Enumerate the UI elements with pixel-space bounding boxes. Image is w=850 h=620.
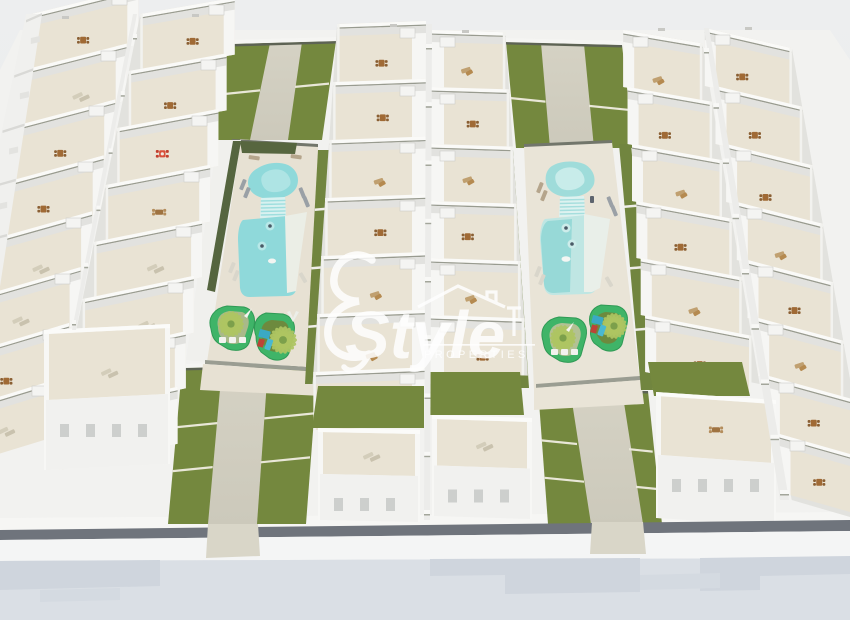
svg-text:PROPERTIES: PROPERTIES bbox=[424, 349, 529, 361]
svg-text:Style: Style bbox=[345, 298, 505, 373]
